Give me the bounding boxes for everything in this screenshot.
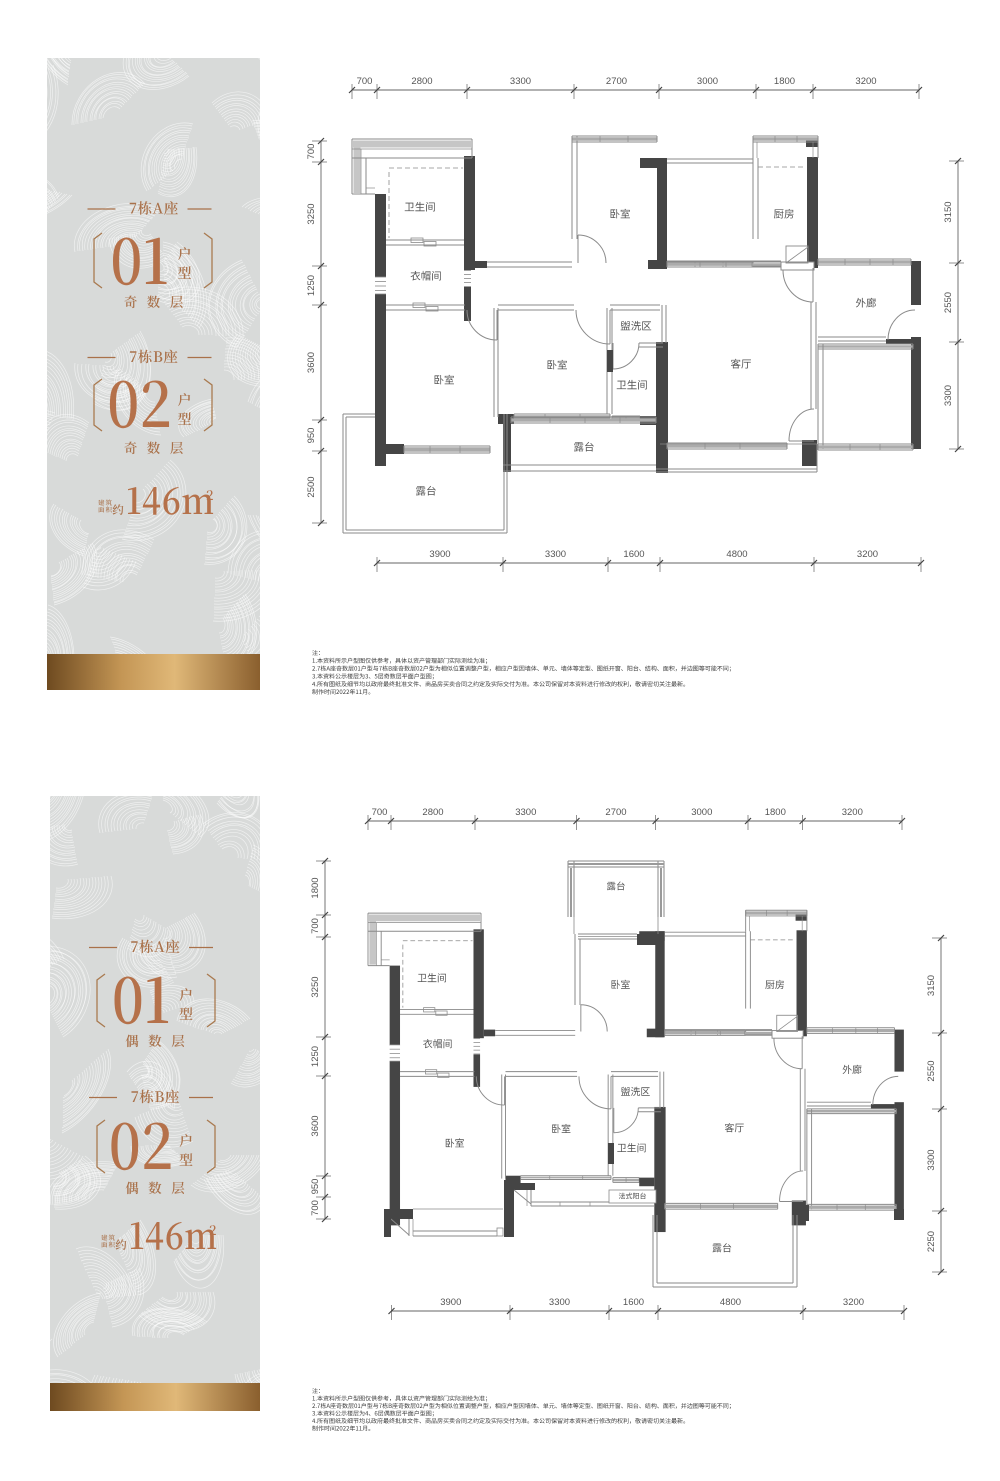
svg-text:3250: 3250 <box>310 976 321 997</box>
svg-text:1250: 1250 <box>306 275 317 296</box>
svg-text:1800: 1800 <box>765 807 786 818</box>
svg-text:2550: 2550 <box>943 292 954 313</box>
svg-text:2700: 2700 <box>605 807 626 818</box>
svg-text:3150: 3150 <box>943 201 954 222</box>
svg-text:2800: 2800 <box>422 807 443 818</box>
svg-text:3600: 3600 <box>306 352 317 373</box>
svg-text:950: 950 <box>306 428 317 444</box>
svg-text:700: 700 <box>357 76 373 87</box>
svg-text:2700: 2700 <box>606 76 627 87</box>
svg-text:3200: 3200 <box>857 549 878 560</box>
svg-text:3200: 3200 <box>855 76 876 87</box>
svg-text:700: 700 <box>310 1200 321 1216</box>
svg-text:3000: 3000 <box>697 76 718 87</box>
svg-text:3200: 3200 <box>842 807 863 818</box>
svg-text:3150: 3150 <box>926 975 937 996</box>
svg-text:3250: 3250 <box>306 203 317 224</box>
svg-text:700: 700 <box>306 144 317 160</box>
svg-text:1250: 1250 <box>310 1046 321 1067</box>
svg-text:3900: 3900 <box>429 549 450 560</box>
svg-text:3300: 3300 <box>943 385 954 406</box>
svg-text:1800: 1800 <box>774 76 795 87</box>
svg-text:2250: 2250 <box>926 1231 937 1252</box>
svg-text:3300: 3300 <box>926 1149 937 1170</box>
svg-text:3200: 3200 <box>843 1297 864 1308</box>
svg-text:2800: 2800 <box>411 76 432 87</box>
svg-text:1800: 1800 <box>310 877 321 898</box>
svg-text:4800: 4800 <box>720 1297 741 1308</box>
svg-text:3300: 3300 <box>515 807 536 818</box>
svg-text:3000: 3000 <box>691 807 712 818</box>
svg-text:3600: 3600 <box>310 1115 321 1136</box>
svg-text:2550: 2550 <box>926 1060 937 1081</box>
svg-text:700: 700 <box>372 807 388 818</box>
svg-text:3300: 3300 <box>549 1297 570 1308</box>
svg-text:1600: 1600 <box>623 1297 644 1308</box>
svg-text:3300: 3300 <box>510 76 531 87</box>
svg-text:700: 700 <box>310 918 321 934</box>
svg-text:4800: 4800 <box>726 549 747 560</box>
svg-text:2500: 2500 <box>306 476 317 497</box>
svg-text:3900: 3900 <box>440 1297 461 1308</box>
svg-text:1600: 1600 <box>623 549 644 560</box>
svg-text:3300: 3300 <box>545 549 566 560</box>
svg-text:950: 950 <box>310 1179 321 1195</box>
